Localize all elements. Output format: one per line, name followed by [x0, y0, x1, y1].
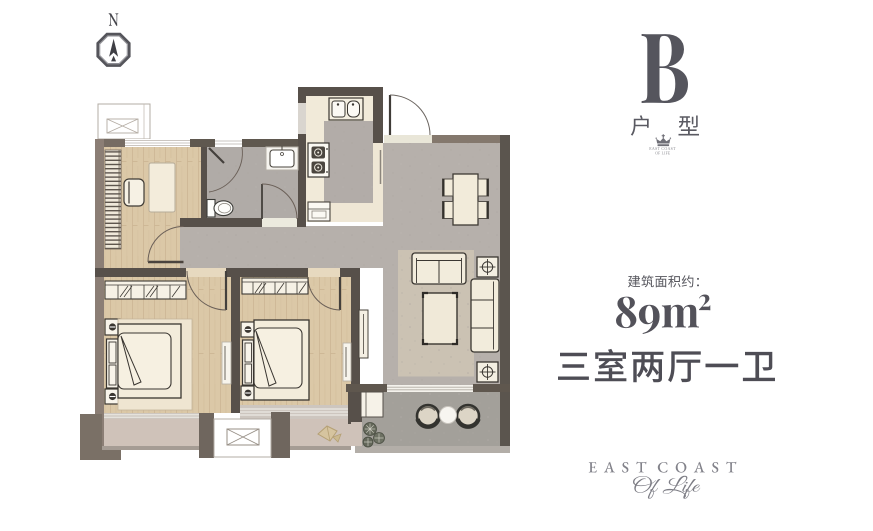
svg-text:EAST COAST: EAST COAST: [649, 146, 676, 151]
svg-text:OF LIFE: OF LIFE: [655, 152, 671, 156]
